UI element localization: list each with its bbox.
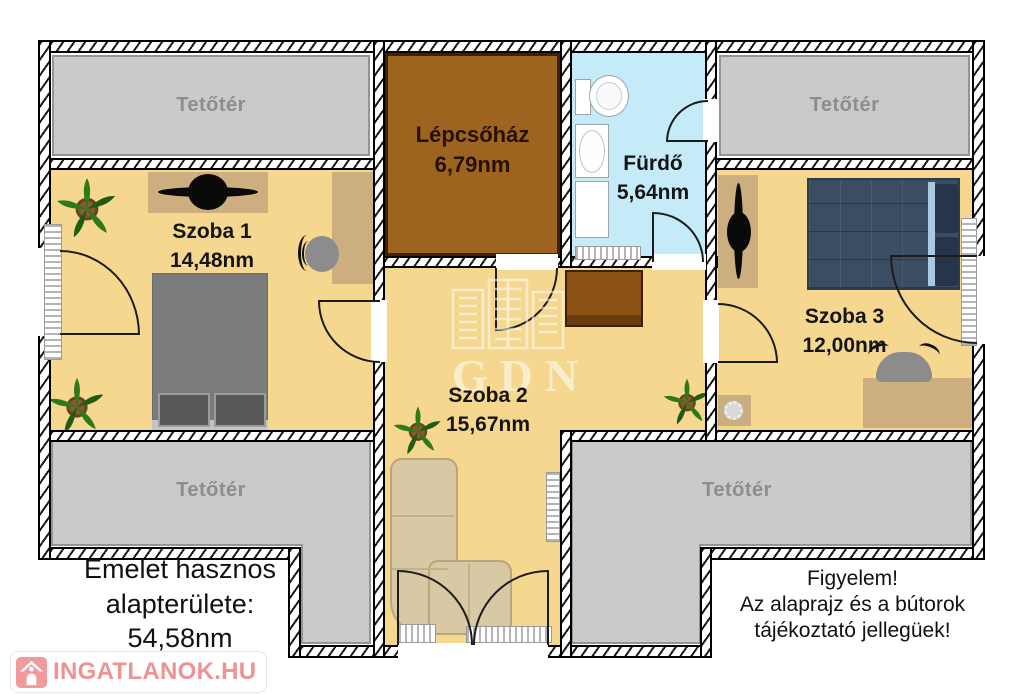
disclaimer-line: tájékoztató jellegüek!: [725, 618, 980, 644]
room-name: Szoba 1: [172, 218, 251, 247]
wall-segment: [700, 547, 985, 560]
door-leaf: [652, 212, 654, 262]
decor-flower-icon: [724, 401, 743, 420]
room-area: 15,67nm: [446, 411, 530, 440]
door-leaf: [666, 140, 708, 142]
label-tetoter-top-left: Tetőtér: [52, 55, 370, 156]
decor-bowl-icon: [188, 174, 228, 210]
radiator: [575, 246, 641, 260]
gdn-buildings-icon: [415, 276, 615, 350]
wall-segment: [705, 158, 985, 170]
summary-line: Emelet hasznos: [30, 552, 330, 587]
label-tetoter-top-right: Tetőtér: [719, 55, 970, 156]
disclaimer-note: Figyelem! Az alaprajz és a bútorok tájék…: [725, 566, 980, 644]
room-name: Szoba 2: [448, 382, 527, 411]
summary-line: alapterülete:: [30, 587, 330, 622]
label-tetoter-bottom-left: Tetőtér: [52, 437, 370, 545]
logo-text: INGATLANOK.HU: [53, 658, 256, 686]
floor-area-summary: Emelet hasznos alapterülete: 54,58nm: [30, 552, 330, 656]
disclaimer-line: Az alaprajz és a bútorok: [725, 592, 980, 618]
room-area: 14,48nm: [170, 247, 254, 276]
wall-segment: [700, 547, 712, 658]
radiator: [546, 472, 560, 542]
pillow: [214, 393, 266, 427]
label-szoba3: Szoba 3 12,00nm: [717, 296, 972, 368]
label-tetoter-bottom-right: Tetőtér: [575, 437, 899, 545]
room-area: 5,64nm: [617, 179, 689, 208]
wall-segment: [560, 40, 572, 268]
label-szoba2: Szoba 2 15,67nm: [388, 374, 588, 448]
potted-plant-icon: [663, 375, 711, 427]
disclaimer-line: Figyelem!: [725, 566, 980, 592]
summary-line: 54,58nm: [30, 621, 330, 656]
desk: [863, 378, 972, 428]
door-leaf: [318, 300, 380, 302]
wall-segment: [38, 40, 985, 53]
house-icon: [16, 657, 47, 688]
door-opening: [398, 643, 548, 660]
pillow: [158, 393, 210, 427]
wall-segment: [38, 158, 385, 170]
room-area: 12,00nm: [802, 332, 886, 361]
door-leaf: [890, 255, 977, 257]
potted-plant-icon: [48, 376, 106, 434]
wall-segment: [560, 430, 572, 658]
label-lepcsohaz: Lépcsőház 6,79nm: [385, 105, 560, 195]
label-szoba1: Szoba 1 14,48nm: [51, 210, 373, 284]
room-area: 6,79nm: [435, 150, 511, 180]
door-leaf: [397, 570, 399, 645]
floor-plan: GDN Tetőtér Tetőtér Tetőtér Tetőtér Lépc…: [0, 0, 1024, 694]
couch-seam: [392, 515, 454, 517]
door-leaf: [60, 333, 138, 335]
toilet-bowl-inner: [596, 82, 622, 110]
room-name: Lépcsőház: [416, 120, 530, 150]
pillow: [935, 184, 958, 233]
ingatlanok-logo: INGATLANOK.HU: [11, 652, 266, 692]
room-name: Szoba 3: [805, 303, 884, 332]
door-leaf: [547, 570, 549, 645]
label-furdo: Fürdő 5,64nm: [598, 143, 708, 215]
decor-bowl-icon: [727, 212, 751, 252]
room-name: Fürdő: [623, 150, 682, 179]
